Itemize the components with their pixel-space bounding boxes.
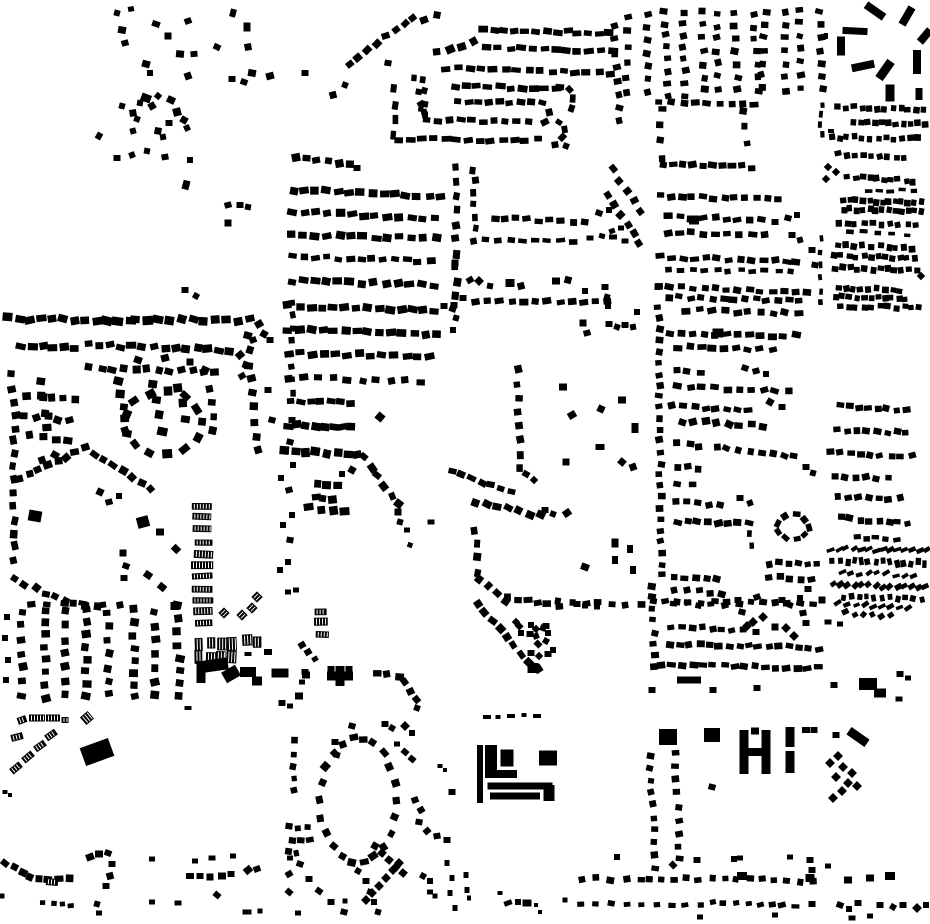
map-svg (0, 0, 930, 924)
building-footprint-map (0, 0, 930, 924)
